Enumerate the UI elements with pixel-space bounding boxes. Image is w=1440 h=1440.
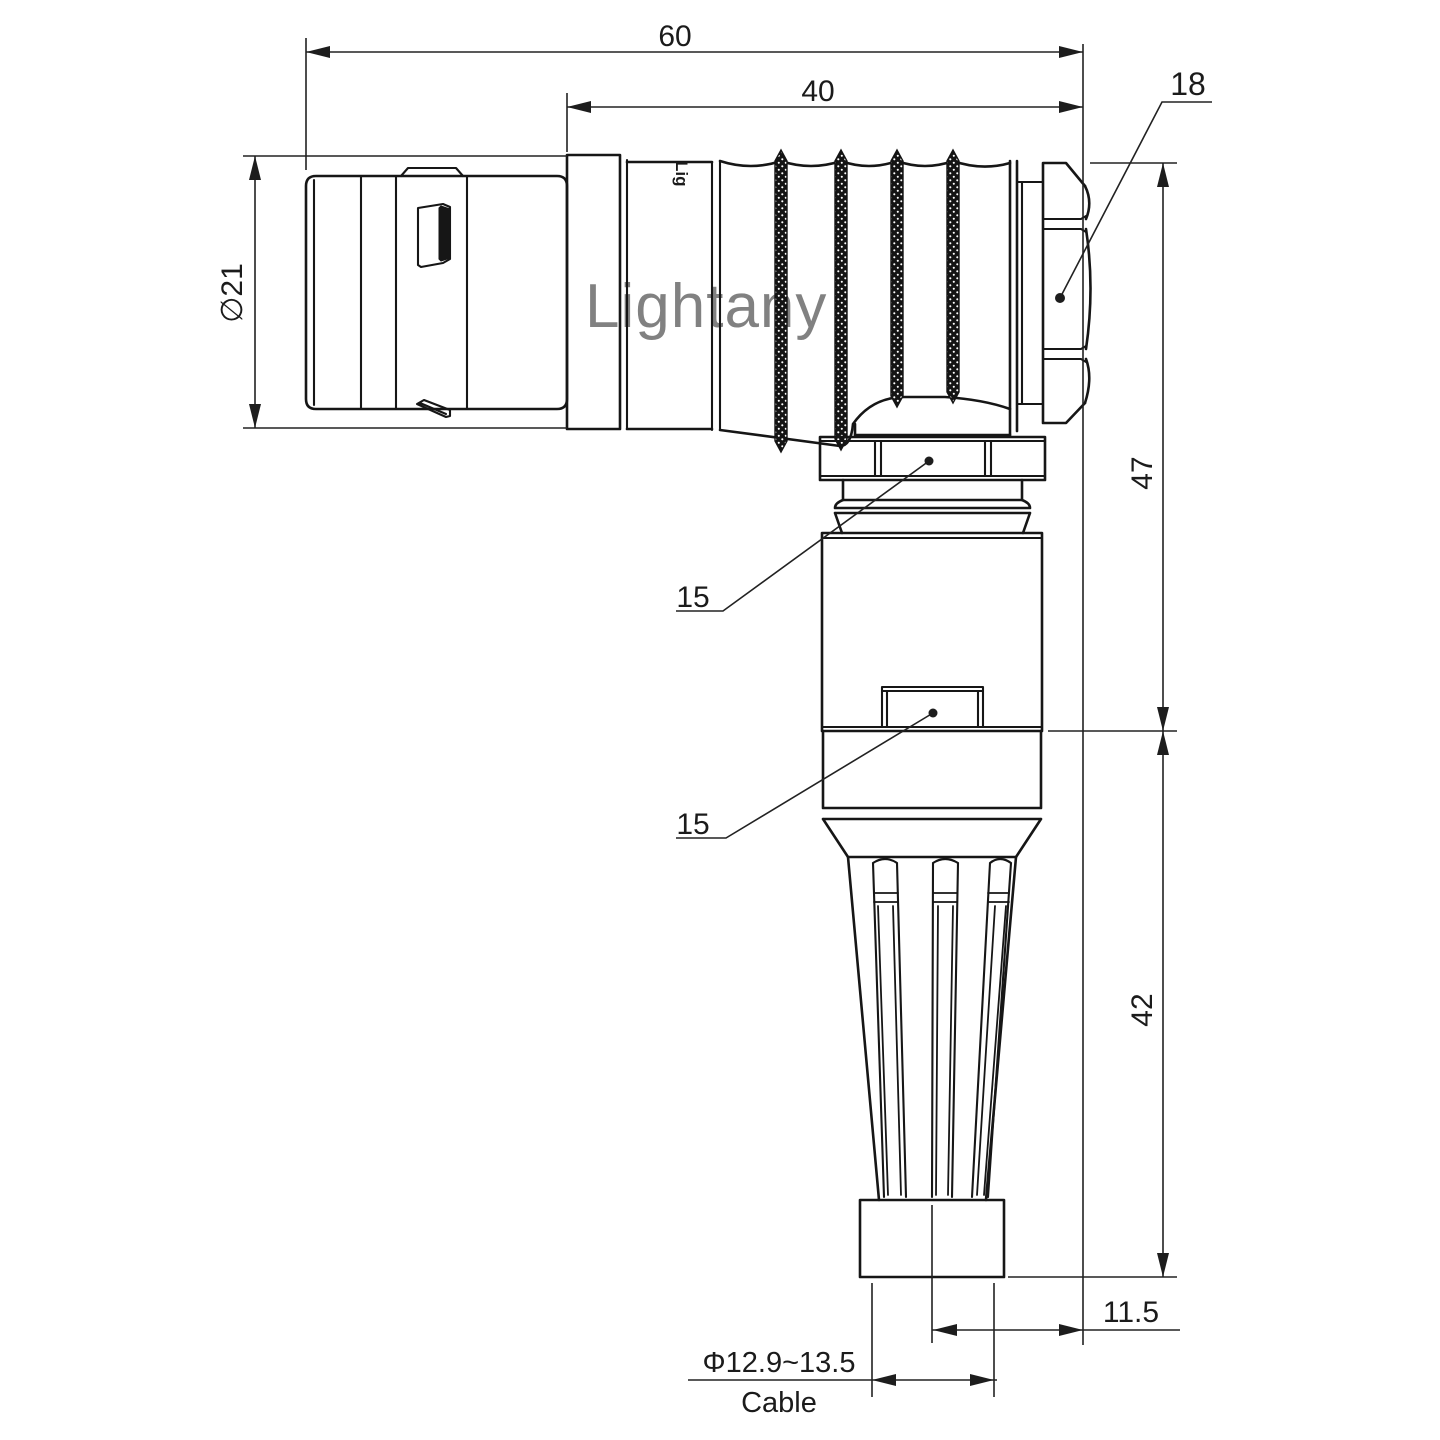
connector-drawing-canvas: Lightany [0, 0, 1440, 1440]
transition-section [823, 731, 1041, 857]
watermark-text: Lightany [585, 272, 827, 341]
sleeve-top-wavy [720, 161, 1010, 167]
dimension-lines [243, 38, 1212, 1397]
knurl-band-3 [891, 150, 903, 407]
keyway-edge [439, 206, 450, 261]
dim-60-text: 60 [658, 20, 691, 53]
dim-18-text: 18 [1170, 66, 1206, 102]
strain-relief [848, 857, 1016, 1200]
extension-lines [243, 38, 1177, 1397]
dim-11-5-text: 11.5 [1103, 1296, 1159, 1329]
leader-dot-15-upper [925, 457, 934, 466]
knurl-band-2 [835, 150, 847, 450]
vertical-body [822, 533, 1042, 731]
dim-dia21-text: ∅21 [216, 263, 249, 323]
dim-47-text: 47 [1126, 456, 1159, 489]
dim-40-text: 40 [801, 75, 834, 108]
cable-label-text: Cable [741, 1387, 817, 1419]
seal-flare [835, 500, 1030, 533]
engraving-text: Lig [672, 161, 691, 187]
elbow-body [855, 424, 1010, 435]
back-nut-body [1043, 163, 1085, 423]
vertical-body-outline [822, 533, 1042, 731]
dimension-arrows [249, 46, 1169, 1386]
knurl-band-1 [775, 150, 787, 452]
sleeve-end-ring [1010, 161, 1017, 435]
leader-dot-18 [1055, 293, 1065, 303]
dim-42-text: 42 [1126, 993, 1159, 1026]
ref-15-lower-text: 15 [676, 808, 709, 841]
neck [1017, 182, 1043, 404]
body-window [882, 687, 983, 727]
dim-cable-dia-text: Φ12.9~13.5 [703, 1347, 856, 1379]
back-nut-facets [1085, 186, 1091, 403]
plug-shell [306, 176, 567, 409]
plug-shell-segments [361, 176, 467, 409]
technical-drawing-page: Lightany [0, 0, 1440, 1440]
collar-ring [843, 480, 1022, 500]
elbow-curve [840, 397, 1010, 446]
vertical-body-rims [822, 538, 1042, 727]
knurl-band-4 [947, 150, 959, 403]
leader-dot-15-lower [929, 709, 938, 718]
leader-15-upper [676, 461, 929, 611]
ref-15-upper-text: 15 [676, 581, 709, 614]
slot-inner-lines [878, 906, 1006, 1195]
